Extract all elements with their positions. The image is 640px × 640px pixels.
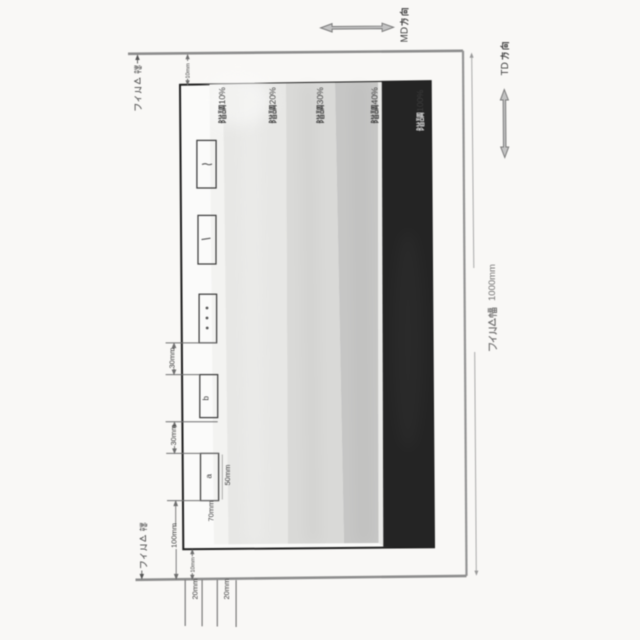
svg-text:20mm: 20mm (190, 579, 199, 600)
svg-text:MD: MD (399, 27, 410, 43)
svg-text:10mm: 10mm (191, 557, 197, 573)
svg-text:10mm: 10mm (186, 63, 192, 79)
svg-text:100mm: 100mm (169, 523, 178, 548)
svg-text:70mm: 70mm (206, 501, 215, 522)
svg-text:b: b (201, 396, 210, 401)
svg-text:100%: 100% (415, 90, 425, 112)
svg-text:20mm: 20mm (222, 579, 231, 600)
svg-text:30mm: 30mm (169, 425, 178, 446)
svg-text:50mm: 50mm (223, 465, 232, 486)
svg-text:20%: 20% (268, 87, 278, 105)
svg-text:40%: 40% (370, 87, 380, 105)
svg-text:1000mm: 1000mm (487, 264, 498, 301)
svg-text:a: a (204, 474, 213, 479)
svg-text:30%: 30% (315, 87, 325, 105)
svg-text:30mm: 30mm (167, 348, 176, 369)
svg-text:10%: 10% (217, 87, 227, 105)
svg-text:TD: TD (500, 62, 511, 75)
